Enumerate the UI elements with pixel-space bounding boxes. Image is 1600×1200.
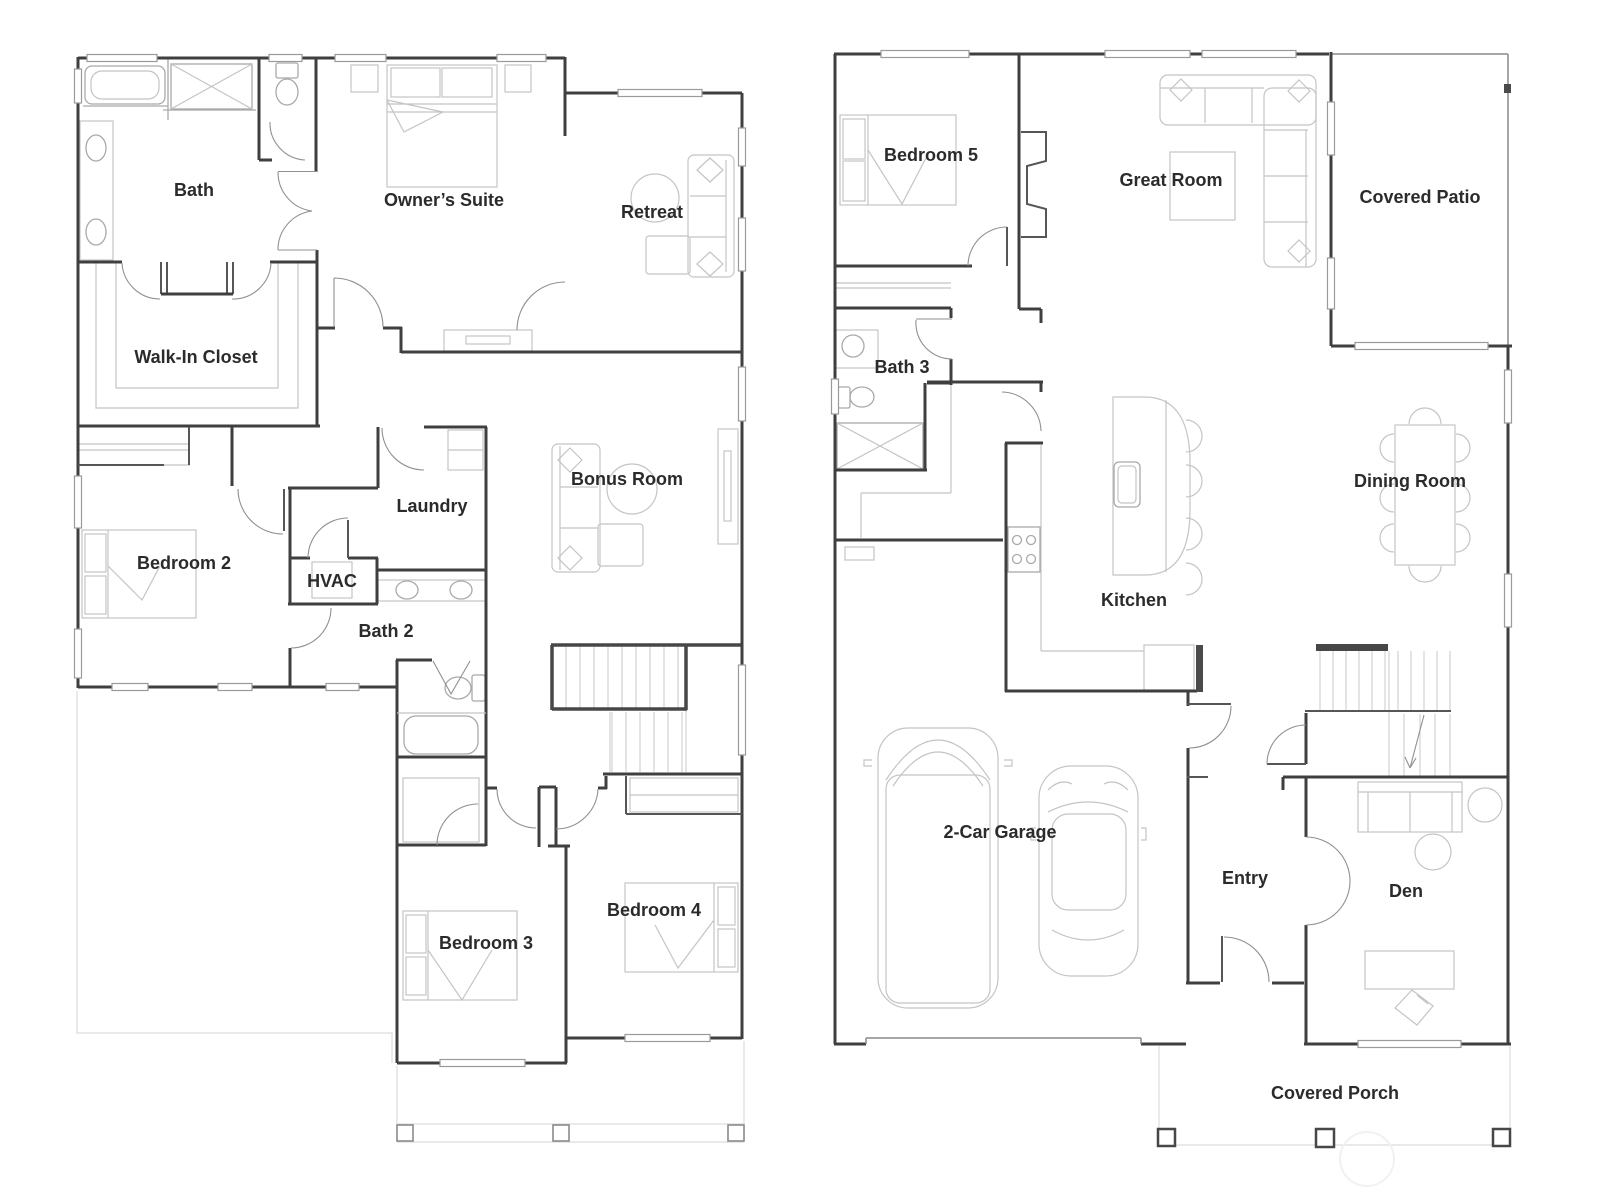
svg-text:Walk-In Closet: Walk-In Closet <box>134 347 257 367</box>
svg-text:Bonus Room: Bonus Room <box>571 469 683 489</box>
svg-text:Great Room: Great Room <box>1119 170 1222 190</box>
svg-text:Bedroom 5: Bedroom 5 <box>884 145 978 165</box>
svg-text:Owner’s Suite: Owner’s Suite <box>384 190 504 210</box>
svg-text:Bath 2: Bath 2 <box>358 621 413 641</box>
svg-text:Bedroom 2: Bedroom 2 <box>137 553 231 573</box>
svg-text:Dining Room: Dining Room <box>1354 471 1466 491</box>
svg-text:Covered Porch: Covered Porch <box>1271 1083 1399 1103</box>
svg-text:Bath: Bath <box>174 180 214 200</box>
svg-text:Covered Patio: Covered Patio <box>1359 187 1480 207</box>
svg-text:Bedroom 4: Bedroom 4 <box>607 900 701 920</box>
svg-text:Bedroom 3: Bedroom 3 <box>439 933 533 953</box>
svg-text:2-Car Garage: 2-Car Garage <box>943 822 1056 842</box>
svg-text:Den: Den <box>1389 881 1423 901</box>
svg-text:Laundry: Laundry <box>396 496 467 516</box>
svg-text:Kitchen: Kitchen <box>1101 590 1167 610</box>
svg-text:Entry: Entry <box>1222 868 1268 888</box>
svg-text:HVAC: HVAC <box>307 571 357 591</box>
svg-text:Bath 3: Bath 3 <box>874 357 929 377</box>
svg-text:Retreat: Retreat <box>621 202 683 222</box>
